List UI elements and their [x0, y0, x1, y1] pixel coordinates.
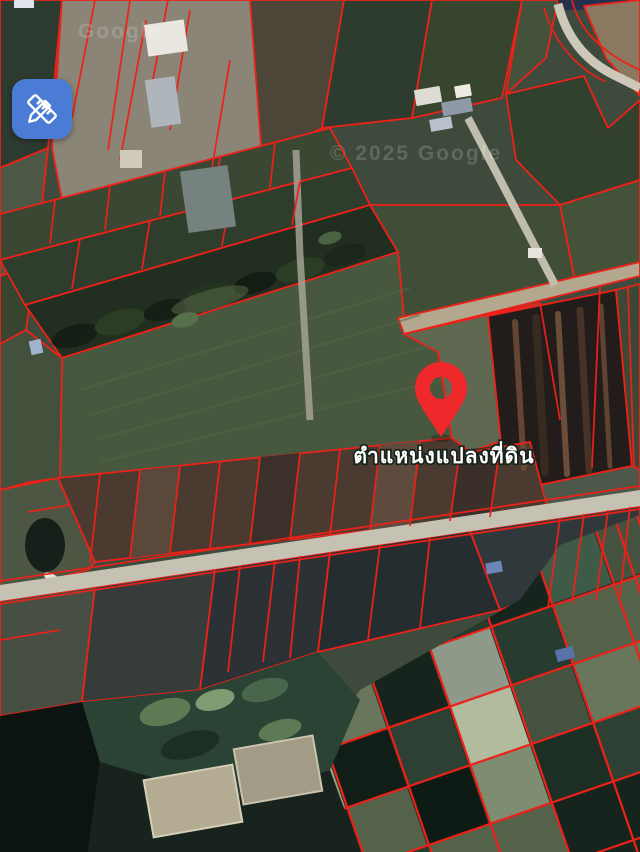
marker-label: ตำแหน่งแปลงที่ดิน — [353, 440, 534, 468]
copyright-watermark-text: © 2025 Google — [330, 142, 502, 165]
map-screen: Google © 2025 Google ตำแหน่งแปลงที่ดิน — [0, 0, 640, 852]
pond-water — [0, 702, 100, 852]
watermark-text: Google — [78, 20, 162, 43]
edit-parcel-button[interactable] — [12, 79, 72, 139]
satellite-map[interactable]: Google © 2025 Google ตำแหน่งแปลงที่ดิน — [0, 0, 640, 852]
pencil-ruler-icon — [22, 89, 62, 129]
